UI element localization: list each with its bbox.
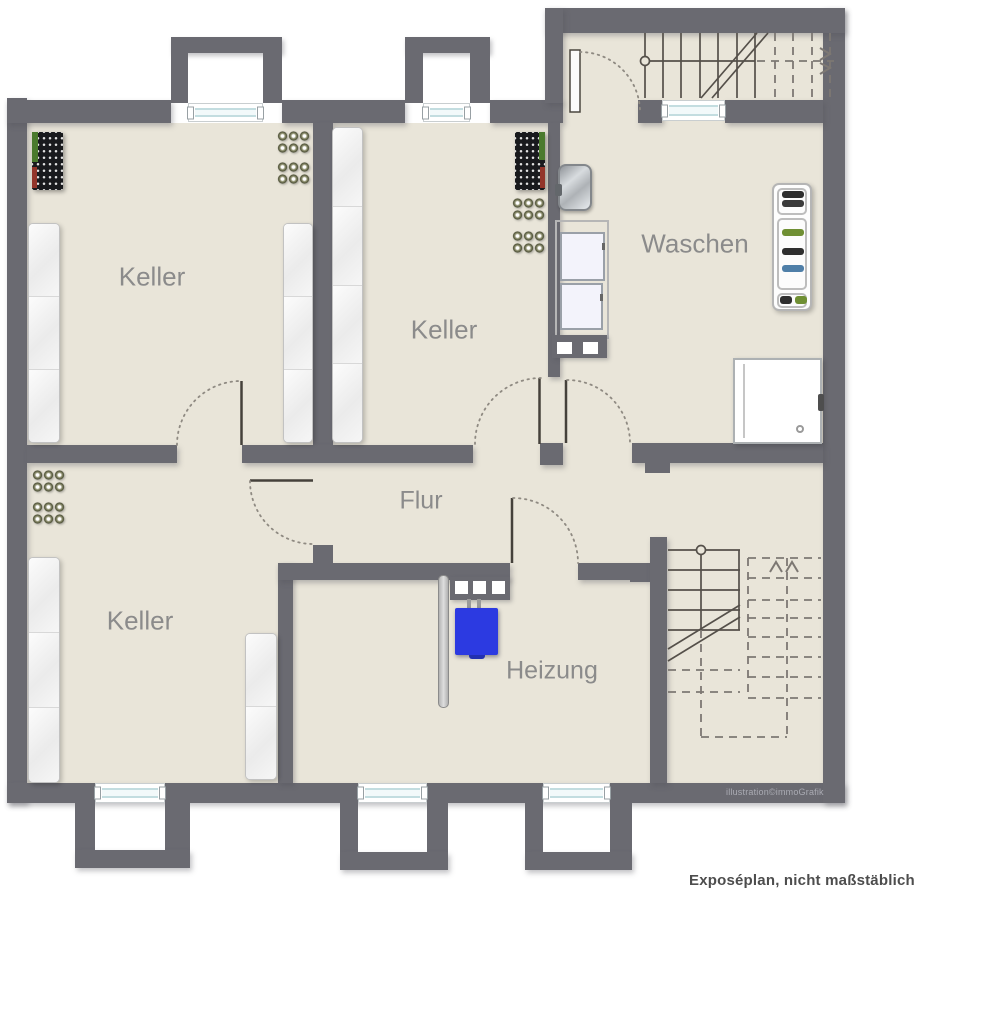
- machine-hinge: [600, 294, 603, 301]
- wall-spine-block: [540, 443, 563, 465]
- window-glass: [195, 108, 256, 117]
- storage-shelf: [245, 633, 277, 780]
- shelf-segment: [246, 634, 276, 707]
- shoes: [782, 248, 804, 255]
- laundry-block: [552, 335, 607, 358]
- storage-shelf: [283, 223, 313, 443]
- washing-machine-icon: [560, 283, 603, 330]
- room-label-keller-top-left: Keller: [119, 262, 185, 293]
- shelf-segment: [333, 286, 362, 365]
- wall-spine-b: [242, 445, 473, 463]
- wall-hall-a: [638, 100, 662, 123]
- shoes: [782, 229, 804, 236]
- bottles-icon: [277, 161, 310, 185]
- flue-pipe: [438, 575, 449, 708]
- shoes: [795, 296, 807, 304]
- room-label-flur: Flur: [399, 487, 442, 516]
- sink-icon: [558, 164, 592, 211]
- shoes: [782, 191, 804, 198]
- storage-shelf: [28, 223, 60, 443]
- room-label-waschen: Waschen: [641, 229, 748, 260]
- basin: [557, 342, 572, 354]
- window: [423, 103, 470, 122]
- floor-plan: Keller Keller Waschen Flur Keller Heizun…: [0, 0, 983, 1024]
- shelf-segment: [29, 370, 59, 442]
- shelf-segment: [29, 558, 59, 633]
- watermark: illustration©immoGrafik: [726, 787, 824, 797]
- wall-outer-left: [7, 98, 27, 803]
- window-bay: [405, 37, 423, 103]
- room-label-keller-middle: Keller: [411, 315, 477, 346]
- window-cap: [257, 106, 264, 119]
- window-cap: [719, 104, 726, 117]
- shower-icon: [733, 358, 822, 444]
- flue-opening: [492, 581, 505, 594]
- shelf-segment: [29, 633, 59, 708]
- bottles-icon: [32, 501, 65, 525]
- shoes: [780, 296, 792, 304]
- shelf-segment: [284, 370, 312, 442]
- room-label-keller-bottom-left: Keller: [107, 606, 173, 637]
- window-bay: [340, 852, 448, 870]
- window-cap: [542, 787, 549, 800]
- shelf-segment: [29, 297, 59, 370]
- faucet: [555, 184, 562, 196]
- window-glass: [669, 105, 718, 116]
- shoes: [782, 265, 804, 272]
- wall-stub-flur: [313, 545, 333, 563]
- window-cap: [421, 787, 428, 800]
- rack-red-strip: [540, 167, 545, 188]
- window: [358, 783, 427, 803]
- window: [543, 783, 610, 803]
- window: [188, 103, 263, 122]
- boiler-tab: [469, 655, 485, 659]
- boiler-pipe: [467, 599, 471, 608]
- window: [662, 100, 725, 121]
- wall-stair-enclosure: [650, 537, 667, 783]
- shelf-segment: [284, 297, 312, 370]
- window-bay: [470, 37, 490, 103]
- wall-hall-b: [725, 100, 823, 123]
- bottles-icon: [32, 469, 65, 493]
- shower-drain: [796, 425, 804, 433]
- window-cap: [187, 106, 194, 119]
- storage-shelf: [28, 557, 60, 783]
- wall-spine-a: [27, 445, 177, 463]
- wall-top-b: [282, 100, 405, 123]
- shelf-segment: [333, 364, 362, 442]
- washing-machine-icon: [560, 232, 605, 281]
- rack-green-strip: [32, 132, 38, 162]
- shelf-segment: [29, 708, 59, 782]
- shelf-segment: [333, 128, 362, 207]
- bottles-icon: [512, 197, 545, 221]
- window-bay: [75, 850, 190, 868]
- wine-rack-icon: [515, 132, 545, 190]
- window-cap: [159, 787, 166, 800]
- window-cap: [464, 106, 471, 119]
- wall-top-a: [7, 100, 171, 123]
- wall-keller1-keller2: [313, 123, 333, 445]
- window-glass: [365, 788, 420, 798]
- shelf-segment: [333, 207, 362, 286]
- storage-shelf: [332, 127, 363, 443]
- boiler-pipe: [477, 599, 481, 608]
- rack-red-strip: [32, 167, 37, 188]
- wine-rack-icon: [32, 132, 63, 190]
- wall-stairhall-top: [545, 8, 845, 33]
- window-cap: [422, 106, 429, 119]
- flue-opening: [473, 581, 486, 594]
- shower-door: [743, 364, 745, 438]
- shoe-rack-icon: [772, 183, 812, 311]
- room-label-heizung: Heizung: [506, 657, 598, 686]
- shelf-segment: [246, 707, 276, 779]
- wall-stub: [645, 463, 670, 473]
- window-cap: [94, 787, 101, 800]
- window-bay: [263, 37, 282, 103]
- caption: Exposéplan, nicht maßstäblich: [689, 872, 915, 889]
- window-bay: [525, 852, 632, 870]
- window-glass: [430, 108, 463, 117]
- shelf-segment: [284, 224, 312, 297]
- basin: [583, 342, 598, 354]
- wall-top-c: [490, 100, 563, 123]
- wall-stair-corner: [630, 563, 650, 582]
- bottles-icon: [512, 230, 545, 254]
- flue-opening: [455, 581, 468, 594]
- window-cap: [357, 787, 364, 800]
- bottles-icon: [277, 130, 310, 154]
- wall-keller3-heizung: [278, 563, 293, 783]
- window-bay: [171, 37, 188, 103]
- shoes: [782, 200, 804, 207]
- window-glass: [550, 788, 603, 798]
- wall-outer-right: [823, 8, 845, 803]
- window: [95, 783, 165, 803]
- shelf-segment: [29, 224, 59, 297]
- wall-spine-c: [632, 443, 823, 463]
- window-cap: [604, 787, 611, 800]
- boiler-icon: [455, 608, 498, 655]
- rack-green-strip: [539, 132, 545, 160]
- wall-stairhall-left: [545, 8, 563, 103]
- window-cap: [661, 104, 668, 117]
- machine-hinge: [602, 243, 605, 250]
- window-glass: [102, 788, 158, 798]
- chimney-block: [450, 577, 510, 600]
- shower-handle: [818, 394, 824, 411]
